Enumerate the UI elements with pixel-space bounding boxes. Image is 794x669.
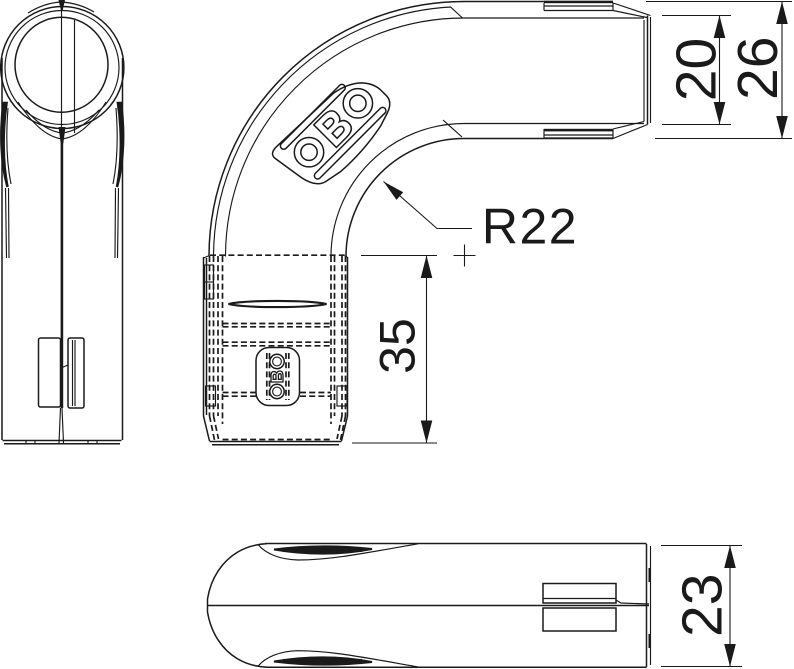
svg-text:26: 26 [726, 37, 790, 100]
svg-text:R22: R22 [482, 199, 578, 255]
svg-text:35: 35 [370, 318, 426, 374]
svg-text:20: 20 [665, 38, 729, 101]
svg-text:23: 23 [671, 574, 735, 637]
